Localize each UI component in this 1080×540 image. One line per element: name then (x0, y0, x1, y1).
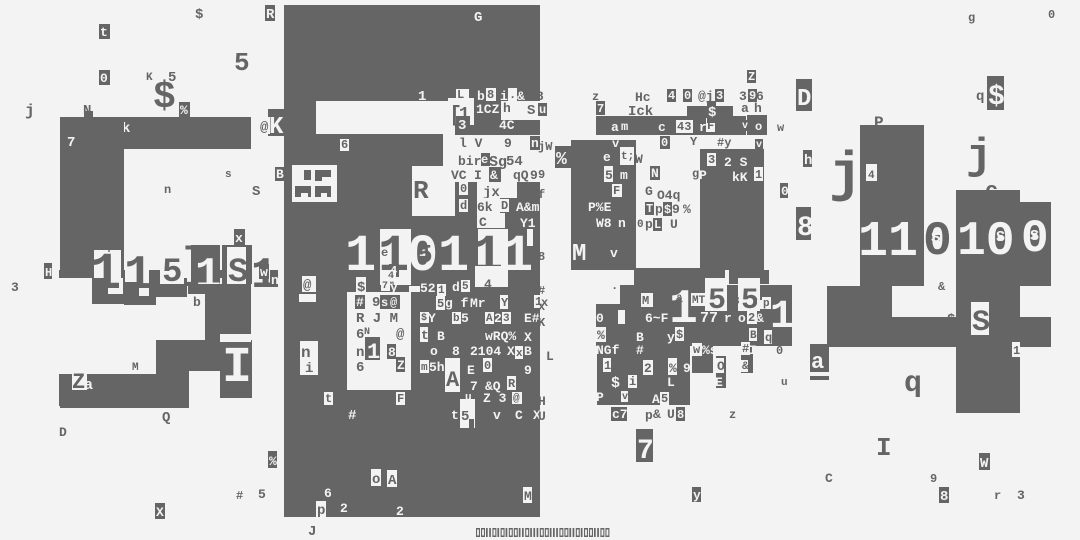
svg-text:1: 1 (604, 359, 611, 373)
svg-text:c7: c7 (612, 407, 628, 422)
svg-text:m: m (421, 362, 428, 374)
svg-text:3: 3 (716, 89, 723, 103)
svg-text:c: c (658, 120, 666, 135)
svg-text:7: 7 (597, 102, 604, 116)
svg-text:v: v (493, 408, 501, 423)
svg-text:5: 5 (258, 487, 266, 502)
svg-text:j: j (966, 132, 992, 182)
svg-text:&: & (756, 311, 764, 326)
svg-text:B: B (750, 330, 757, 342)
svg-text:N: N (651, 166, 659, 181)
svg-text:4: 4 (668, 89, 675, 103)
svg-text:wRQ%: wRQ% (485, 329, 516, 344)
svg-text:6k: 6k (477, 200, 493, 215)
svg-text:Z: Z (397, 358, 405, 373)
svg-text:0: 0 (460, 182, 467, 196)
svg-text:8: 8 (538, 250, 545, 264)
svg-text:I: I (876, 433, 892, 463)
svg-text:G: G (474, 10, 482, 26)
svg-text:K: K (146, 72, 153, 84)
svg-text:y: y (693, 488, 701, 503)
svg-text:3: 3 (733, 296, 740, 308)
svg-text:6: 6 (341, 138, 348, 152)
svg-text:B: B (276, 167, 284, 182)
svg-text:2: 2 (644, 361, 652, 376)
svg-text:$: $ (664, 203, 671, 217)
svg-text:D: D (501, 199, 508, 213)
svg-text:E: E (715, 375, 723, 390)
svg-text:G: G (645, 184, 653, 199)
svg-text:b: b (453, 313, 460, 325)
svg-text:d: d (452, 280, 460, 295)
svg-text:D: D (754, 361, 762, 376)
svg-text:t: t (100, 25, 108, 40)
svg-text:5: 5 (462, 281, 469, 293)
svg-text:5: 5 (461, 409, 469, 425)
svg-text:D: D (59, 425, 67, 440)
svg-text:A: A (652, 392, 660, 407)
svg-text:7: 7 (382, 281, 388, 292)
svg-text:8: 8 (797, 213, 814, 244)
svg-text:f: f (538, 188, 545, 202)
svg-text:10: 10 (957, 215, 1015, 269)
svg-text:b: b (193, 295, 201, 310)
svg-text:3: 3 (1017, 488, 1025, 503)
svg-text:S: S (972, 306, 990, 340)
svg-text:4: 4 (868, 170, 875, 182)
svg-text:X: X (507, 344, 515, 359)
svg-text:1CZ: 1CZ (476, 102, 500, 117)
svg-text:S: S (527, 103, 535, 119)
svg-text:S: S (252, 184, 260, 200)
svg-text:4C: 4C (499, 118, 515, 133)
svg-text:N: N (364, 327, 370, 338)
svg-text:$: $ (708, 105, 716, 121)
svg-text:Y: Y (428, 311, 436, 326)
svg-text:5: 5 (234, 48, 250, 78)
svg-text:t: t (421, 328, 429, 343)
svg-text:w: w (777, 121, 785, 135)
svg-text:%: % (683, 202, 691, 217)
svg-text:W: W (980, 456, 989, 472)
svg-text:9: 9 (504, 136, 512, 151)
svg-text:D: D (797, 86, 811, 113)
svg-text:M: M (642, 294, 649, 308)
svg-text:P: P (699, 168, 707, 183)
svg-text:3: 3 (458, 118, 466, 134)
svg-text:Y: Y (501, 296, 509, 310)
svg-text:7: 7 (67, 135, 75, 151)
svg-text:r: r (699, 120, 707, 135)
svg-text:u: u (539, 103, 546, 117)
svg-text:O: O (717, 359, 725, 374)
svg-text:K: K (538, 316, 546, 330)
svg-text:t;: t; (621, 151, 634, 163)
svg-text:2: 2 (340, 501, 348, 516)
svg-text:@j: @j (698, 89, 714, 104)
svg-text:v: v (742, 121, 748, 132)
svg-text:5: 5 (605, 168, 613, 183)
svg-text:#: # (636, 343, 644, 358)
svg-text:r: r (994, 489, 1001, 503)
svg-text:%: % (269, 454, 277, 469)
svg-text:j: j (25, 102, 35, 120)
svg-text:x: x (516, 348, 523, 360)
svg-text:U: U (538, 409, 546, 424)
svg-text:$: $ (153, 76, 176, 119)
svg-text:1: 1 (438, 285, 445, 297)
svg-text:v: v (612, 137, 619, 151)
svg-text:W: W (635, 152, 643, 167)
svg-text:U: U (670, 217, 678, 232)
svg-text:&: & (490, 168, 498, 183)
svg-text:p: p (763, 298, 770, 310)
svg-text:9: 9 (372, 295, 380, 311)
svg-text:r: r (724, 311, 732, 326)
svg-text:8: 8 (388, 345, 396, 360)
svg-text:0: 0 (1048, 8, 1055, 22)
svg-text:1: 1 (367, 340, 380, 365)
svg-text:p: p (655, 202, 663, 217)
svg-text:$: $ (988, 82, 1005, 113)
svg-text:S: S (931, 229, 941, 247)
svg-text:v: v (622, 392, 628, 403)
svg-text:@: @ (396, 327, 405, 343)
svg-text:o: o (430, 344, 438, 359)
svg-text:p: p (645, 217, 653, 232)
svg-text:A: A (446, 368, 460, 393)
svg-text:L: L (654, 218, 661, 232)
svg-text:J: J (308, 524, 316, 540)
svg-text:5: 5 (437, 297, 444, 311)
svg-text:$: $ (195, 7, 203, 23)
svg-text:i: i (305, 361, 313, 377)
svg-text:p: p (317, 503, 325, 519)
svg-text:X: X (524, 330, 532, 345)
svg-text:#: # (348, 408, 356, 424)
svg-text:6: 6 (324, 486, 332, 501)
svg-text:U: U (667, 407, 675, 422)
svg-text:q: q (765, 331, 772, 345)
svg-text:Z: Z (748, 70, 755, 84)
svg-text:7: 7 (637, 436, 654, 467)
svg-text:S: S (1030, 228, 1039, 245)
svg-text:1: 1 (124, 249, 153, 303)
svg-text:%: % (597, 328, 605, 343)
svg-text:q: q (904, 367, 922, 401)
svg-text:c: c (985, 179, 998, 204)
svg-text:M: M (132, 362, 139, 374)
svg-text:R: R (508, 377, 516, 391)
svg-text:s: s (225, 169, 232, 181)
svg-text:6~F: 6~F (645, 311, 669, 326)
svg-text:3: 3 (11, 280, 19, 295)
svg-text:W8: W8 (596, 216, 612, 231)
svg-text:L: L (667, 375, 675, 390)
svg-text:0: 0 (781, 184, 789, 199)
svg-text:Mr: Mr (470, 296, 486, 311)
svg-text:%: % (556, 150, 567, 170)
svg-text:MT: MT (692, 295, 706, 307)
svg-text:F: F (613, 184, 620, 198)
svg-text:0: 0 (637, 219, 644, 231)
svg-text:3: 3 (503, 313, 510, 325)
svg-text:P%E: P%E (588, 200, 612, 215)
svg-text:9: 9 (530, 168, 538, 183)
svg-text:kK: kK (732, 170, 748, 185)
svg-text:$: $ (421, 312, 427, 324)
svg-text:P: P (596, 390, 604, 405)
svg-text:4: 4 (484, 277, 492, 292)
svg-text:9: 9 (683, 361, 691, 376)
svg-text:0: 0 (684, 89, 691, 103)
svg-text:5h: 5h (429, 360, 445, 375)
svg-text:2104: 2104 (470, 344, 501, 359)
svg-text:x: x (235, 231, 243, 246)
svg-text:1: 1 (755, 168, 762, 182)
svg-text:0: 0 (484, 359, 491, 373)
svg-text:I: I (474, 168, 482, 183)
svg-text:2: 2 (748, 311, 755, 325)
svg-text:9: 9 (524, 363, 532, 378)
svg-text:p: p (645, 408, 653, 423)
svg-text:w: w (260, 265, 268, 280)
svg-text:B: B (437, 329, 445, 344)
svg-text:K: K (269, 114, 284, 141)
svg-text:VC: VC (451, 168, 467, 183)
svg-text:o: o (755, 120, 762, 134)
svg-text:v: v (756, 140, 762, 151)
svg-text:u: u (781, 377, 788, 389)
svg-text:E: E (467, 363, 475, 378)
svg-text:a: a (741, 101, 749, 116)
svg-text:8: 8 (487, 88, 494, 102)
svg-text:w: w (693, 343, 701, 357)
svg-text:n: n (164, 183, 171, 197)
svg-text:Y: Y (106, 245, 112, 256)
svg-text:$: $ (676, 328, 683, 342)
svg-text:n: n (356, 345, 364, 361)
svg-text:R: R (266, 7, 275, 23)
svg-text:#: # (356, 295, 364, 310)
svg-text:@: @ (303, 278, 312, 294)
svg-text:M: M (524, 489, 532, 504)
svg-text:j: j (829, 143, 863, 207)
svg-text:h: h (503, 101, 511, 116)
svg-text:t: t (325, 392, 332, 406)
svg-text:jW: jW (538, 140, 553, 154)
svg-text:Ick: Ick (628, 104, 653, 120)
svg-text:x: x (538, 300, 545, 314)
svg-text:H: H (45, 266, 52, 280)
svg-text:5: 5 (661, 392, 668, 406)
svg-text:Y: Y (690, 135, 698, 149)
svg-text:M: M (572, 241, 586, 268)
svg-text:@: @ (513, 393, 520, 405)
svg-text:$: $ (947, 312, 955, 328)
svg-text:#y: #y (717, 136, 731, 150)
svg-text:e: e (603, 150, 611, 165)
svg-text:#: # (236, 489, 243, 503)
svg-text:9: 9 (930, 472, 937, 486)
svg-text:1: 1 (1013, 344, 1020, 358)
svg-text:0: 0 (661, 136, 668, 150)
svg-text:1: 1 (438, 227, 469, 286)
svg-text:C: C (825, 471, 833, 486)
svg-text:B: B (524, 344, 532, 359)
svg-text:Z 3: Z 3 (483, 391, 507, 406)
svg-text:6: 6 (356, 360, 364, 376)
svg-text:H: H (538, 394, 546, 409)
svg-text:&: & (676, 294, 683, 306)
svg-text:0: 0 (776, 344, 783, 358)
svg-text:A: A (486, 313, 493, 325)
svg-text:L: L (546, 349, 554, 364)
svg-text:.: . (509, 88, 516, 102)
svg-text:l V: l V (459, 136, 483, 151)
svg-text:8: 8 (452, 344, 460, 359)
svg-text:a: a (84, 377, 93, 394)
svg-text:c: c (726, 343, 734, 358)
svg-text:o: o (738, 311, 746, 326)
svg-text:h: h (804, 153, 812, 169)
svg-text:8: 8 (940, 489, 948, 505)
svg-text:%s: %s (702, 343, 718, 358)
svg-text:n: n (618, 216, 626, 231)
svg-text:%: % (180, 103, 188, 118)
svg-text:4: 4 (388, 271, 394, 282)
svg-text:0: 0 (100, 71, 108, 86)
svg-text:R: R (413, 176, 429, 206)
svg-text:m: m (620, 168, 628, 183)
svg-text:g f: g f (445, 296, 469, 311)
svg-text:n: n (301, 344, 311, 362)
svg-text:q: q (976, 89, 984, 105)
svg-text:A&m: A&m (516, 200, 540, 215)
svg-text:n: n (271, 273, 279, 288)
svg-text:C: C (515, 408, 523, 423)
svg-text:$: $ (611, 375, 620, 392)
svg-text:T: T (646, 202, 653, 216)
svg-text:z: z (729, 408, 736, 422)
svg-text:v: v (610, 246, 618, 261)
svg-text:5: 5 (417, 240, 433, 270)
svg-text:2: 2 (494, 311, 502, 326)
svg-text:8: 8 (677, 408, 684, 422)
svg-text:S: S (996, 229, 1005, 246)
svg-text:a: a (811, 350, 824, 375)
svg-text:%: % (669, 361, 677, 376)
svg-text:2: 2 (396, 504, 404, 519)
svg-text:52: 52 (420, 281, 436, 296)
svg-text:e: e (481, 153, 488, 167)
svg-text:@: @ (260, 120, 269, 136)
svg-text:h: h (754, 101, 762, 116)
svg-text:0: 0 (596, 311, 604, 326)
svg-text:qQ: qQ (513, 168, 529, 183)
svg-text:O4q: O4q (657, 188, 680, 203)
svg-text:Q: Q (162, 410, 170, 426)
svg-text:3: 3 (708, 153, 715, 167)
svg-text:#: # (538, 284, 545, 298)
svg-text:z: z (592, 90, 599, 104)
svg-text:o: o (372, 472, 380, 488)
svg-text:2 S: 2 S (724, 155, 748, 170)
svg-text:g: g (968, 11, 975, 25)
svg-text:NGf: NGf (596, 343, 620, 358)
svg-text:Hc: Hc (635, 90, 651, 105)
svg-text:d: d (460, 199, 467, 213)
svg-text:F: F (397, 392, 404, 406)
svg-text:1: 1 (770, 295, 794, 340)
svg-text:&: & (742, 361, 749, 373)
svg-text:I: I (749, 343, 757, 358)
svg-text:y: y (667, 330, 675, 345)
svg-text:m: m (621, 120, 628, 134)
svg-text:&: & (653, 407, 661, 422)
svg-text:43: 43 (677, 120, 691, 134)
svg-text:a: a (611, 120, 619, 135)
svg-text:5: 5 (461, 311, 469, 326)
svg-text:11: 11 (858, 214, 918, 271)
svg-text:I: I (222, 340, 252, 397)
svg-text:R J M: R J M (356, 311, 398, 327)
svg-text:&: & (938, 280, 946, 294)
svg-text:X: X (156, 505, 164, 520)
svg-text:e: e (381, 246, 388, 260)
svg-text:t: t (451, 408, 459, 423)
svg-text:A: A (388, 473, 397, 489)
svg-text:s: s (381, 296, 388, 310)
svg-text:9: 9 (538, 168, 545, 182)
svg-text:@: @ (390, 296, 397, 310)
svg-text:77: 77 (700, 310, 718, 327)
svg-text:i: i (629, 375, 636, 389)
svg-text:9: 9 (672, 202, 680, 217)
